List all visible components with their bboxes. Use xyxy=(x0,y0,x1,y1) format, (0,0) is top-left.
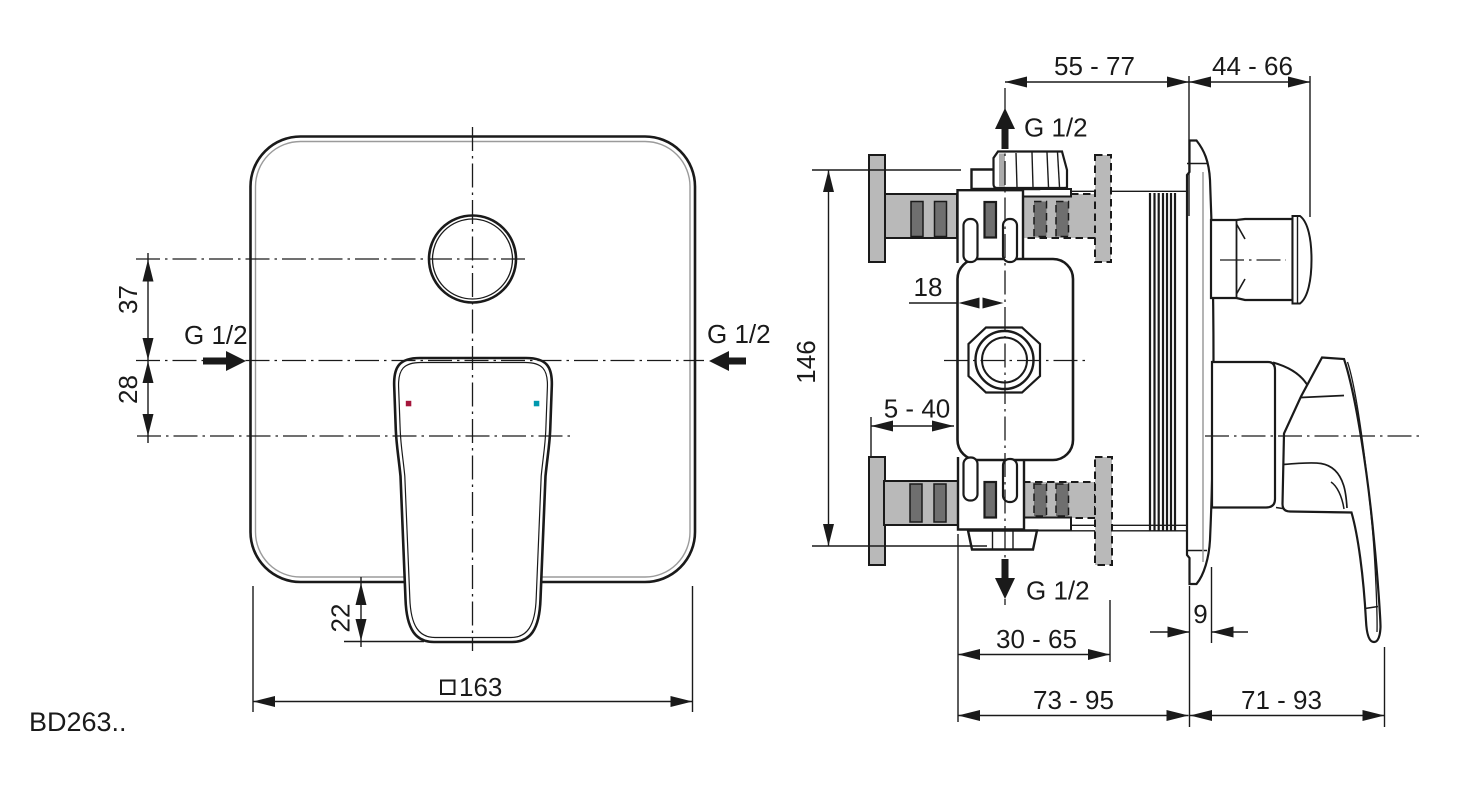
svg-text:28: 28 xyxy=(113,375,143,404)
svg-text:163: 163 xyxy=(459,672,502,702)
svg-text:37: 37 xyxy=(113,285,143,314)
svg-text:71 - 93: 71 - 93 xyxy=(1241,685,1322,715)
svg-text:5 - 40: 5 - 40 xyxy=(884,394,951,424)
svg-text:146: 146 xyxy=(791,340,821,383)
svg-text:G 1/2: G 1/2 xyxy=(707,319,771,349)
svg-text:44 - 66: 44 - 66 xyxy=(1212,51,1293,81)
svg-text:73 - 95: 73 - 95 xyxy=(1033,685,1114,715)
svg-text:G 1/2: G 1/2 xyxy=(184,320,248,350)
svg-text:30 - 65: 30 - 65 xyxy=(996,624,1077,654)
svg-text:G 1/2: G 1/2 xyxy=(1026,576,1090,606)
svg-text:18: 18 xyxy=(914,272,943,302)
svg-text:9: 9 xyxy=(1193,599,1207,629)
svg-text:22: 22 xyxy=(326,604,356,633)
svg-text:BD263..: BD263.. xyxy=(29,707,127,737)
svg-text:G 1/2: G 1/2 xyxy=(1024,113,1088,143)
svg-text:55 - 77: 55 - 77 xyxy=(1054,51,1135,81)
